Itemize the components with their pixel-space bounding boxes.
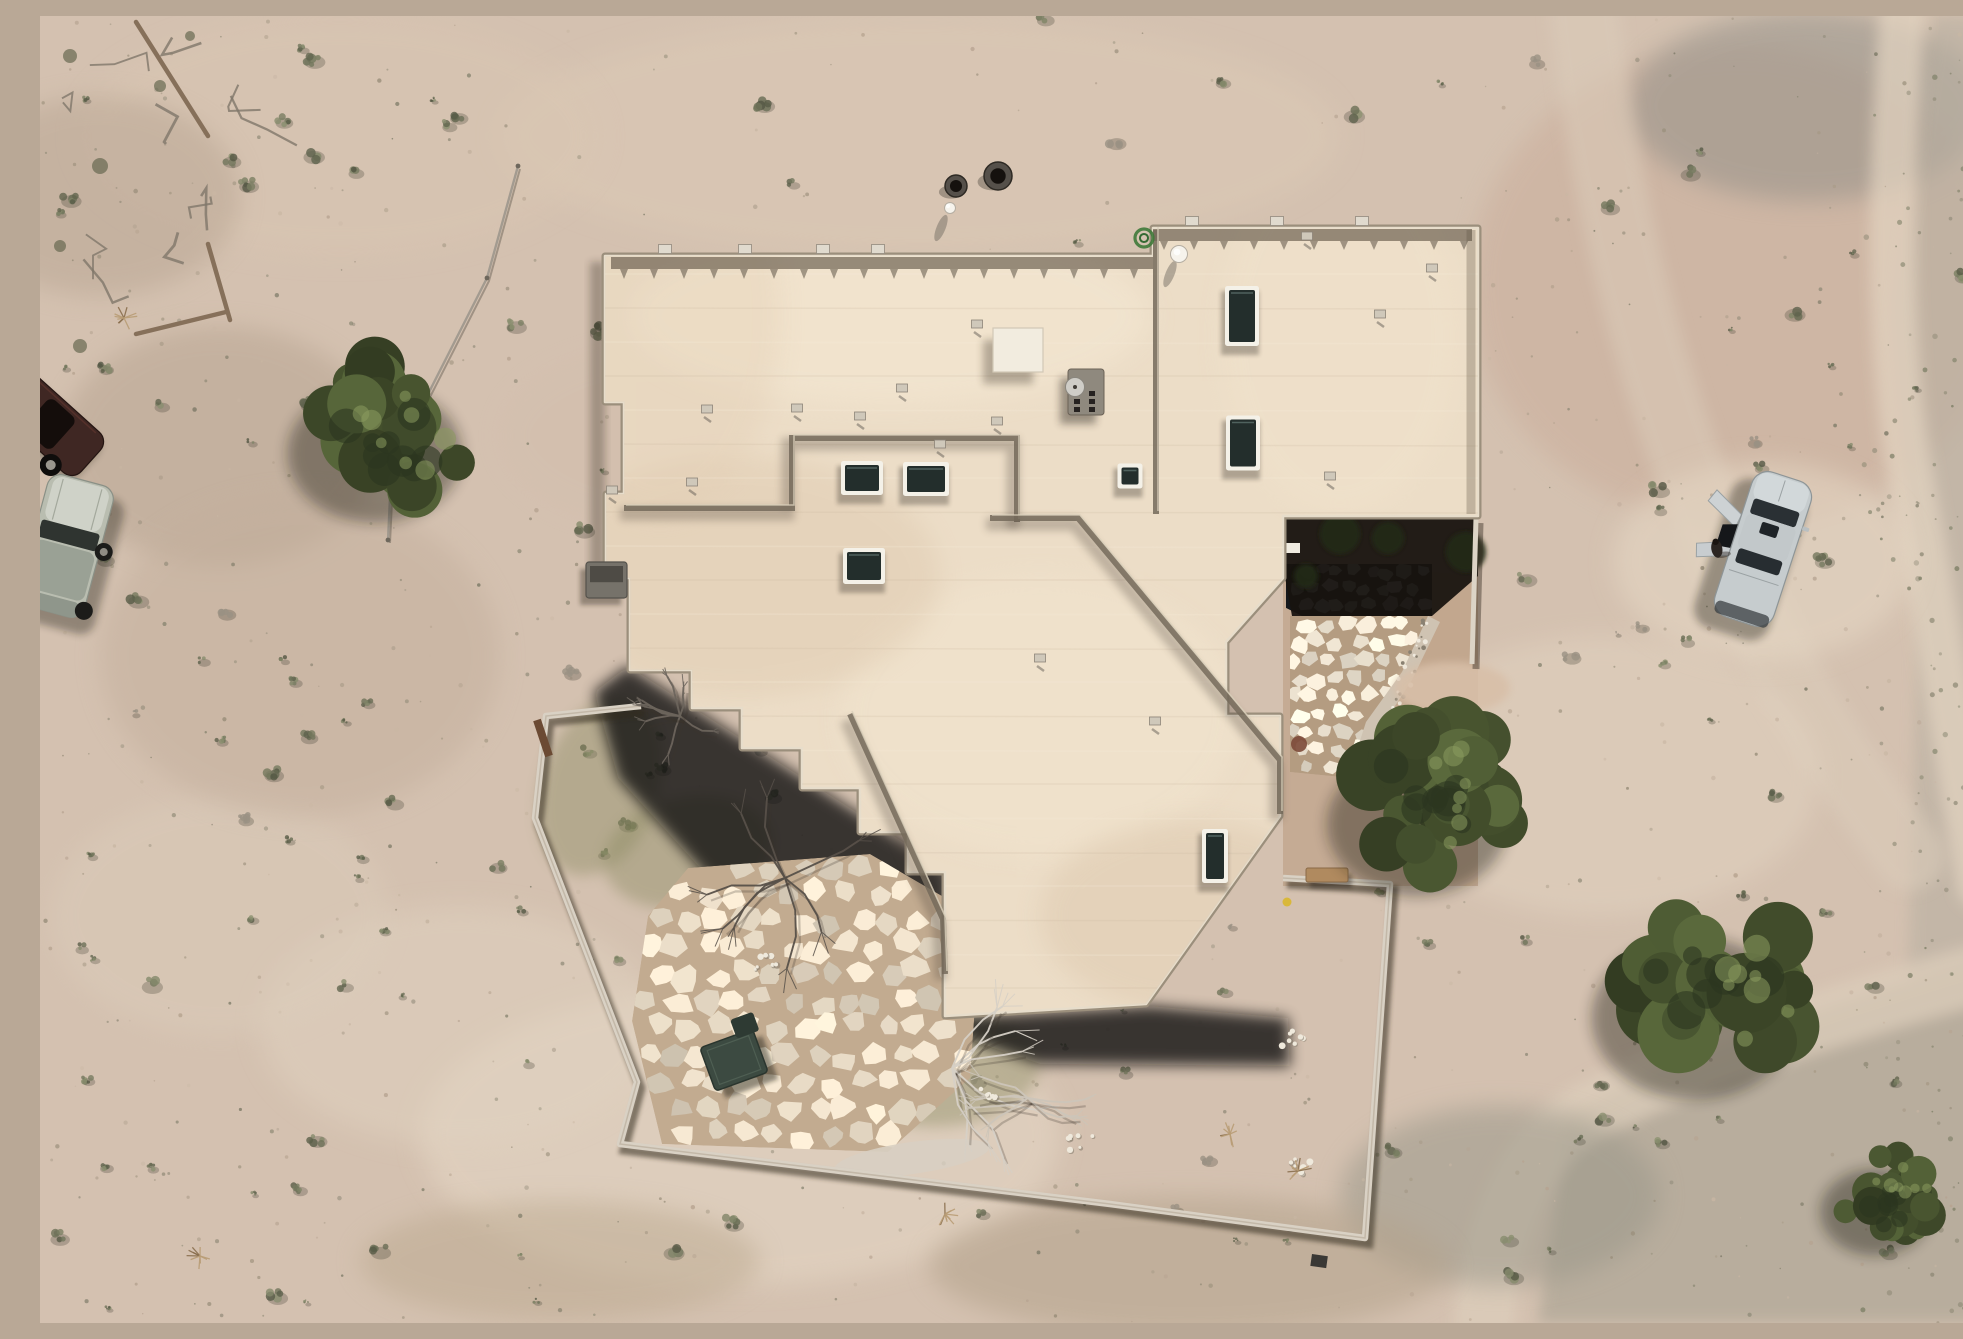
skylight bbox=[899, 462, 949, 505]
parapet-vent bbox=[1186, 217, 1199, 226]
parapet-vent bbox=[659, 245, 672, 254]
skylight bbox=[1221, 286, 1259, 355]
parapet-vent bbox=[1356, 217, 1369, 226]
court-bench bbox=[1306, 868, 1348, 882]
skylight bbox=[1114, 464, 1143, 498]
entry-plant bbox=[1320, 514, 1360, 554]
skylight bbox=[1222, 416, 1260, 480]
red-shrub bbox=[1291, 736, 1307, 752]
parapet-vent bbox=[817, 245, 830, 254]
entry-plant bbox=[1294, 564, 1318, 588]
scene-svg bbox=[40, 16, 1963, 1323]
entry-plant bbox=[1372, 522, 1404, 554]
roof-hatch bbox=[993, 328, 1043, 372]
entry-step bbox=[1286, 543, 1300, 553]
parapet-vent bbox=[872, 245, 885, 254]
parapet-vent bbox=[739, 245, 752, 254]
parapet-vent bbox=[1271, 217, 1284, 226]
aerial-drone-photo: Top-down aerial drone photograph of a fl… bbox=[40, 16, 1963, 1323]
skylight bbox=[839, 548, 885, 593]
skylight bbox=[837, 461, 883, 504]
ac-unit bbox=[580, 562, 627, 605]
yellow-item bbox=[1283, 898, 1292, 907]
skylight bbox=[1198, 829, 1228, 892]
trash-bin bbox=[1310, 1254, 1328, 1268]
